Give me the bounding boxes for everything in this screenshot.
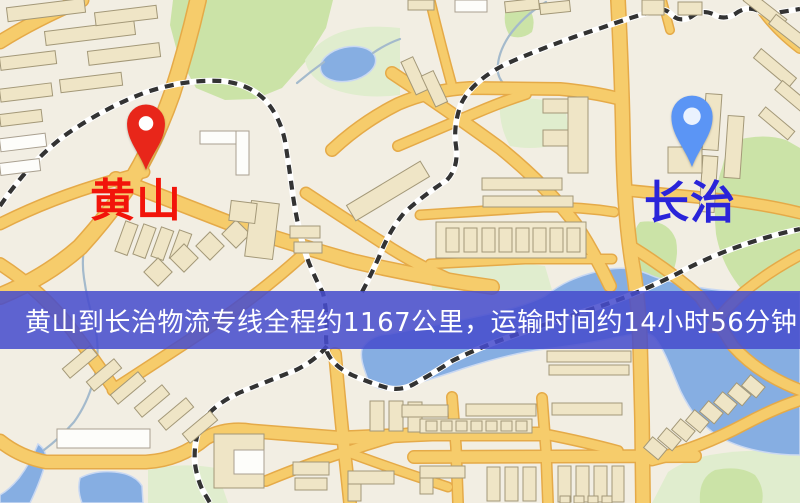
origin-city-label: 黄山 bbox=[90, 178, 182, 223]
origin-pin-hole bbox=[139, 116, 154, 131]
map-canvas[interactable] bbox=[0, 0, 800, 503]
route-info-banner: 黄山到长治物流专线全程约1167公里，运输时间约14小时56分钟. bbox=[0, 291, 800, 349]
route-info-text: 黄山到长治物流专线全程约1167公里，运输时间约14小时56分钟. bbox=[0, 302, 800, 339]
origin-pin-icon[interactable] bbox=[124, 103, 168, 170]
destination-pin-shape bbox=[671, 96, 712, 167]
destination-city-label: 长治 bbox=[644, 180, 736, 225]
origin-pin-shape bbox=[127, 104, 165, 170]
destination-pin-hole bbox=[683, 107, 700, 124]
destination-pin-icon[interactable] bbox=[668, 94, 716, 167]
map-viewport: 黄山 长治 黄山到长治物流专线全程约1167公里，运输时间约14小时56分钟. bbox=[0, 0, 800, 503]
